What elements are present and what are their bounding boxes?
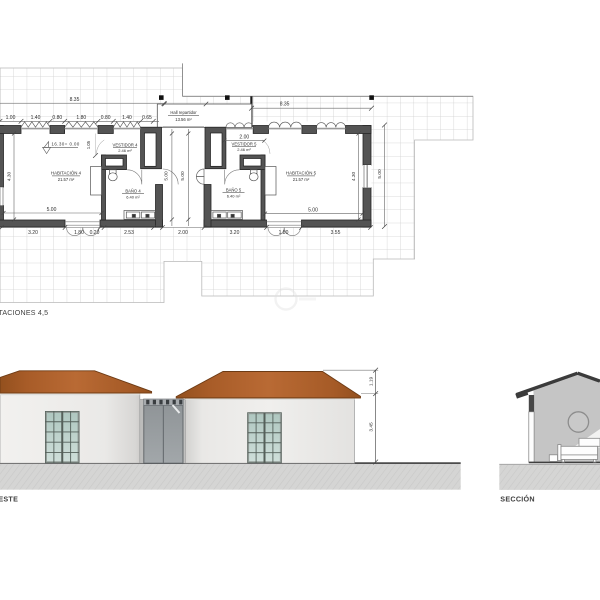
svg-text:21.57 m²: 21.57 m² (293, 177, 310, 182)
svg-text:0.65: 0.65 (142, 115, 152, 121)
svg-text:5.00: 5.00 (180, 171, 186, 181)
svg-text:2.00: 2.00 (178, 230, 188, 236)
svg-text:4.30: 4.30 (7, 172, 13, 182)
svg-text:13.56 m²: 13.56 m² (175, 117, 192, 122)
svg-text:HABITACIÓN 4: HABITACIÓN 4 (51, 170, 82, 175)
svg-text:16.30= 0.00: 16.30= 0.00 (52, 141, 80, 146)
svg-text:0.80: 0.80 (52, 115, 62, 121)
svg-text:2.53: 2.53 (124, 230, 134, 236)
svg-text:SECCIÓN: SECCIÓN (500, 494, 535, 503)
svg-text:2.46 m²: 2.46 m² (237, 147, 251, 152)
svg-text:5.00: 5.00 (308, 207, 318, 213)
svg-text:3.55: 3.55 (331, 230, 341, 236)
svg-text:Hall repartidor: Hall repartidor (170, 110, 197, 115)
svg-text:1.80: 1.80 (76, 115, 86, 121)
svg-text:2.46 m²: 2.46 m² (118, 148, 132, 153)
svg-text:3.45: 3.45 (368, 422, 374, 432)
svg-text:1.80: 1.80 (279, 230, 289, 236)
svg-text:BAÑO 5: BAÑO 5 (226, 187, 242, 192)
svg-text:1.80: 1.80 (74, 230, 84, 236)
svg-text:1.40: 1.40 (122, 115, 132, 121)
svg-text:4.30: 4.30 (351, 172, 357, 182)
svg-text:VESTIDOR 5: VESTIDOR 5 (232, 141, 258, 146)
svg-text:BAÑO 4: BAÑO 4 (125, 188, 141, 193)
svg-text:8.35: 8.35 (280, 102, 290, 108)
svg-text:5.00: 5.00 (47, 207, 57, 213)
svg-text:1.19: 1.19 (368, 377, 374, 387)
svg-text:21.57 m²: 21.57 m² (58, 177, 75, 182)
svg-text:1.40: 1.40 (31, 115, 41, 121)
svg-text:6.40 m²: 6.40 m² (126, 194, 140, 199)
svg-text:0.20: 0.20 (90, 230, 100, 236)
svg-text:6.40 m²: 6.40 m² (227, 193, 241, 198)
svg-text:5.00: 5.00 (164, 171, 170, 181)
svg-text:3.20: 3.20 (230, 230, 240, 236)
svg-text:HABITACIÓN 5: HABITACIÓN 5 (286, 170, 317, 175)
svg-text:1.05: 1.05 (86, 140, 91, 149)
svg-text:3.20: 3.20 (28, 230, 38, 236)
svg-text:0.80: 0.80 (101, 115, 111, 121)
svg-text:2.00: 2.00 (239, 134, 249, 140)
svg-text:VESTIDOR 4: VESTIDOR 4 (113, 142, 139, 147)
svg-text:8.35: 8.35 (70, 97, 80, 103)
svg-text:5.00: 5.00 (377, 169, 383, 179)
svg-text:HABITACIONES 4,5: HABITACIONES 4,5 (0, 309, 48, 317)
svg-text:1.00: 1.00 (6, 115, 16, 121)
svg-text:OESTE: OESTE (0, 494, 18, 503)
